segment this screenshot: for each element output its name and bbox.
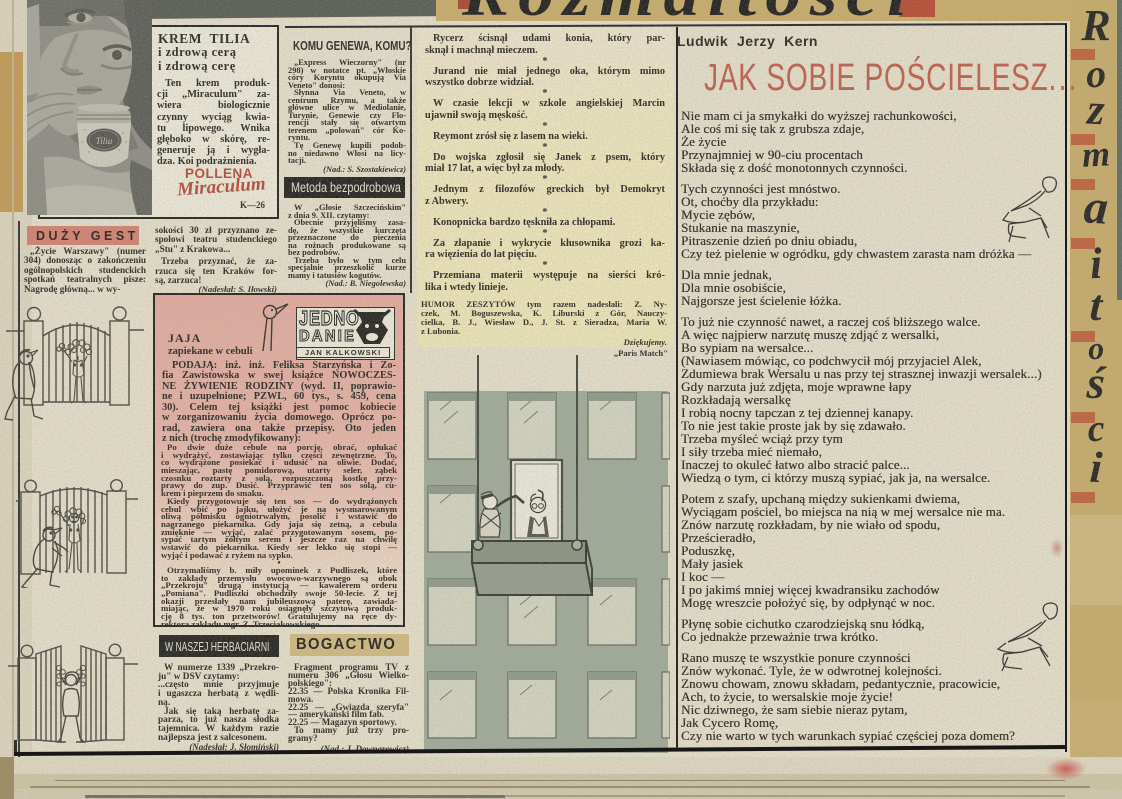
svg-text:Tilia: Tilia <box>96 136 113 146</box>
